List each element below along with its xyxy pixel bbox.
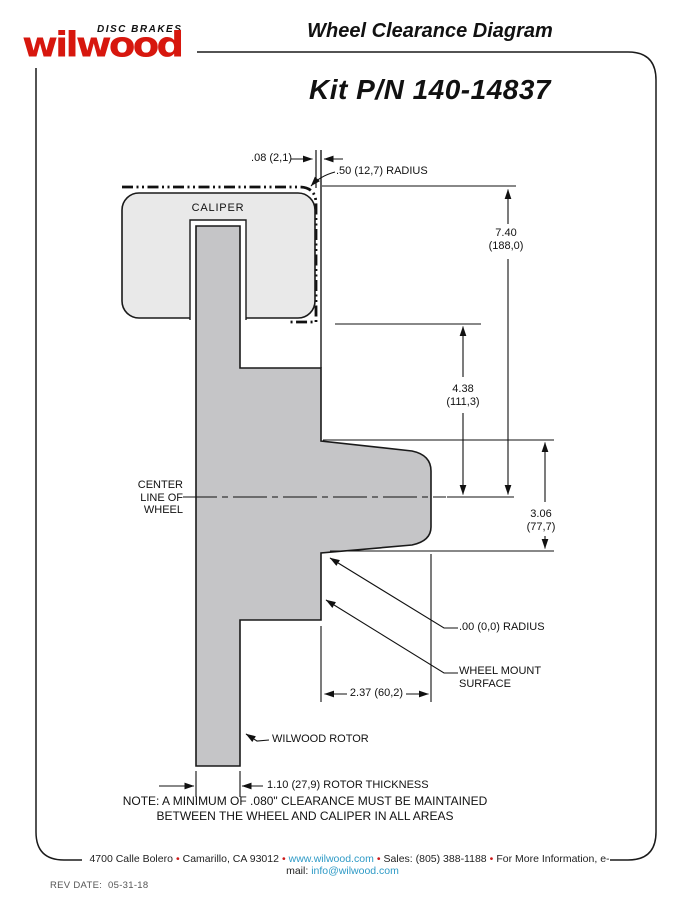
footer-email-link[interactable]: info@wilwood.com	[311, 865, 399, 877]
footer-contact-line: 4700 Calle Bolero•Camarillo, CA 93012•ww…	[82, 853, 609, 877]
footer-bar: 4700 Calle Bolero•Camarillo, CA 93012•ww…	[36, 853, 656, 877]
wheel-clearance-sheet: DISC BRAKES wilwood Wheel Clearance Diag…	[0, 0, 700, 906]
footer-separator: •	[173, 853, 183, 865]
footer-city: Camarillo, CA 93012	[183, 853, 279, 865]
dim-zero-radius: .00 (0,0) RADIUS	[459, 621, 545, 634]
dim-mount-depth-text: 2.37 (60,2)	[347, 687, 406, 699]
dim-caliper-to-center: 4.38 (111,3)	[433, 383, 493, 409]
dim-mount-depth: 2.37 (60,2)	[326, 687, 427, 700]
footer-sales-phone: Sales: (805) 388-1188	[384, 853, 487, 865]
dim-wheel-radius-in: 7.40	[476, 227, 536, 240]
caliper-label: CALIPER	[158, 202, 278, 215]
footer-separator: •	[279, 853, 289, 865]
dim-hub-pad-mm: (77,7)	[511, 521, 571, 534]
footer-website-link[interactable]: www.wilwood.com	[289, 853, 374, 865]
footer-separator: •	[487, 853, 497, 865]
brand-logo: wilwood	[22, 30, 181, 62]
dim-wheel-radius: 7.40 (188,0)	[476, 227, 536, 253]
footer-address: 4700 Calle Bolero	[89, 853, 172, 865]
dim-caliper-to-center-mm: (111,3)	[433, 396, 493, 409]
dim-clearance-gap: .08 (2,1)	[200, 152, 292, 165]
rev-date-label: REV DATE:	[50, 880, 102, 891]
rotor-label: WILWOOD ROTOR	[272, 733, 369, 746]
dim-wheel-radius-mm: (188,0)	[476, 240, 536, 253]
rev-date-line: REV DATE: 05-31-18	[50, 880, 148, 891]
diagram-canvas	[0, 0, 700, 906]
dim-hub-pad: 3.06 (77,7)	[511, 508, 571, 534]
clearance-note: NOTE: A MINIMUM OF .080" CLEARANCE MUST …	[70, 794, 540, 823]
kit-number: Kit P/N 140-14837	[220, 74, 640, 106]
centerline-label: CENTER LINE OF WHEEL	[110, 479, 183, 517]
wheel-mount-label: WHEEL MOUNT SURFACE	[459, 665, 541, 691]
dim-rotor-thickness: 1.10 (27,9) ROTOR THICKNESS	[267, 779, 429, 792]
rev-date-value: 05-31-18	[108, 880, 148, 891]
doc-title: Wheel Clearance Diagram	[230, 20, 630, 43]
footer-separator: •	[374, 853, 384, 865]
dim-hub-pad-in: 3.06	[511, 508, 571, 521]
dim-caliper-to-center-in: 4.38	[433, 383, 493, 396]
dim-corner-radius: .50 (12,7) RADIUS	[336, 165, 428, 178]
